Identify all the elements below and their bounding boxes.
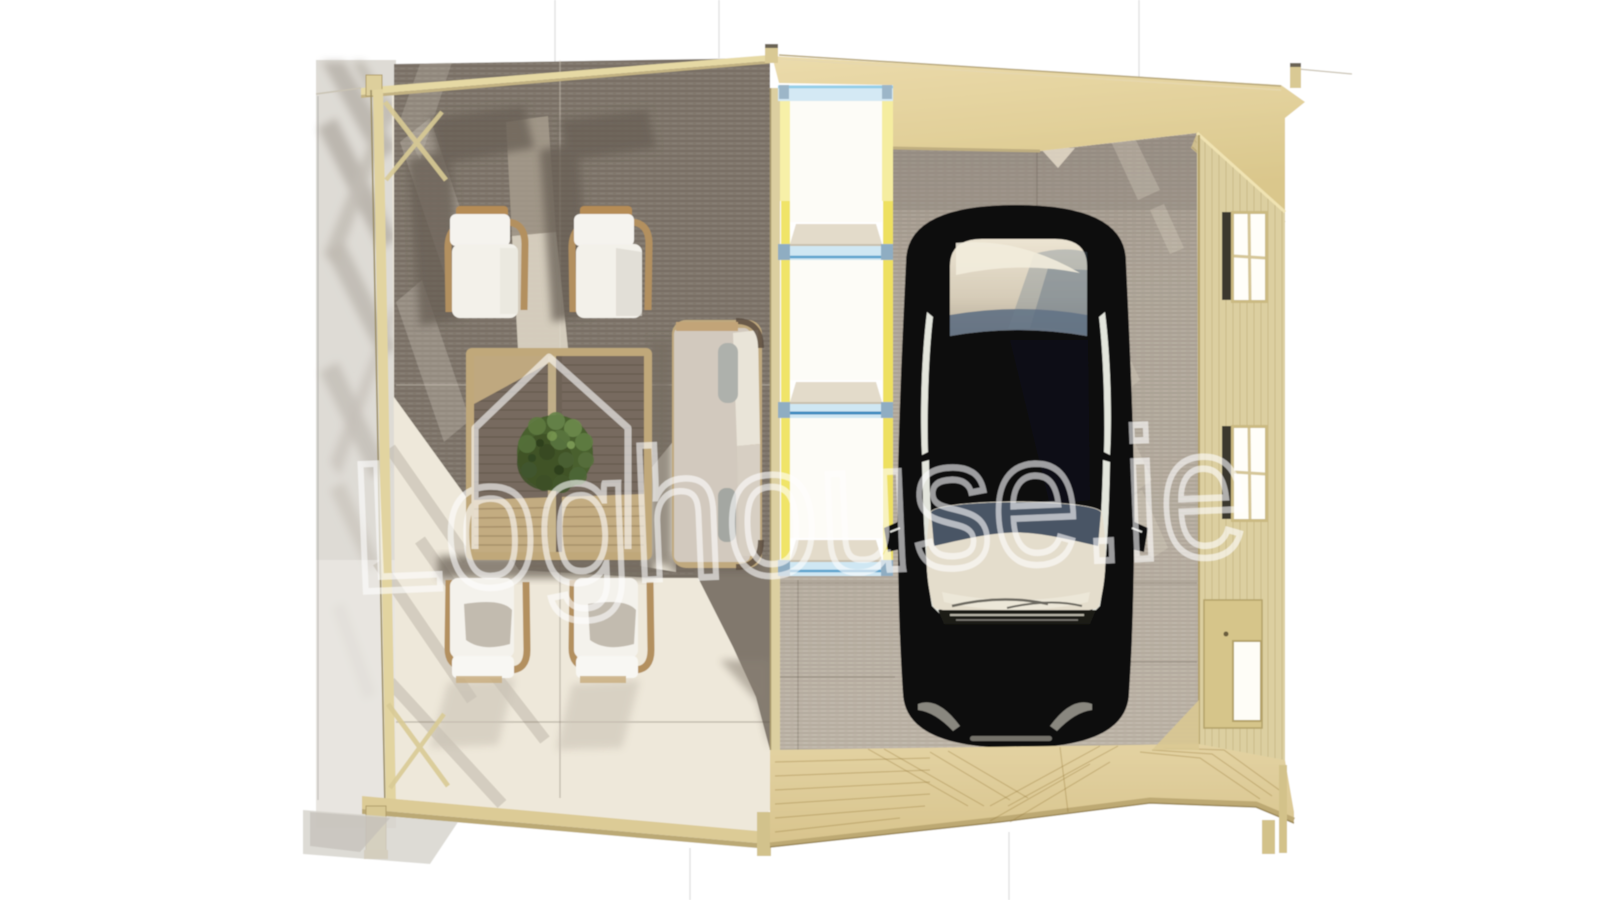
svg-text:Loghouse.ie: Loghouse.ie	[345, 388, 1252, 631]
